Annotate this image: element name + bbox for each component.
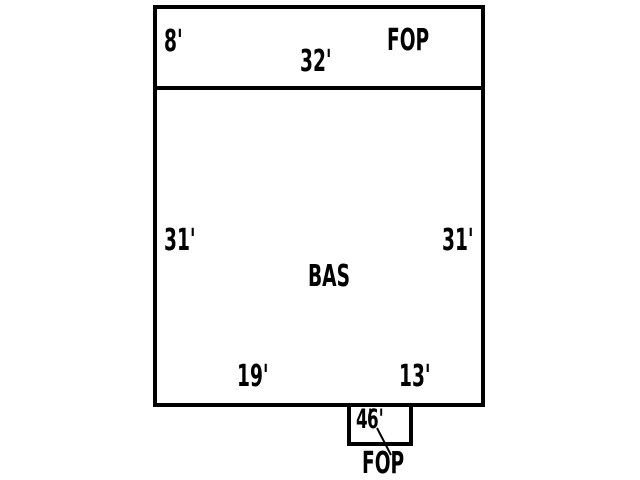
top-fop-area-label: FOP xyxy=(387,26,429,56)
top-fop-width-dimension: 32' xyxy=(300,47,332,77)
floorplan-sketch: 8' 32' FOP 31' 31' BAS 19' 13' 4' 6' FOP xyxy=(0,0,640,480)
top-fop-left-dimension: 8' xyxy=(164,27,183,57)
bas-bottom-right-dimension: 13' xyxy=(399,362,431,392)
bottom-fop-width-dimension: 6' xyxy=(367,406,384,433)
bas-bottom-left-dimension: 19' xyxy=(237,362,269,392)
bas-area-label: BAS xyxy=(308,262,350,292)
bas-right-dimension: 31' xyxy=(442,226,474,256)
fop-bas-divider-line xyxy=(153,86,485,90)
bottom-fop-area-label: FOP xyxy=(362,449,404,479)
bas-left-dimension: 31' xyxy=(164,226,196,256)
